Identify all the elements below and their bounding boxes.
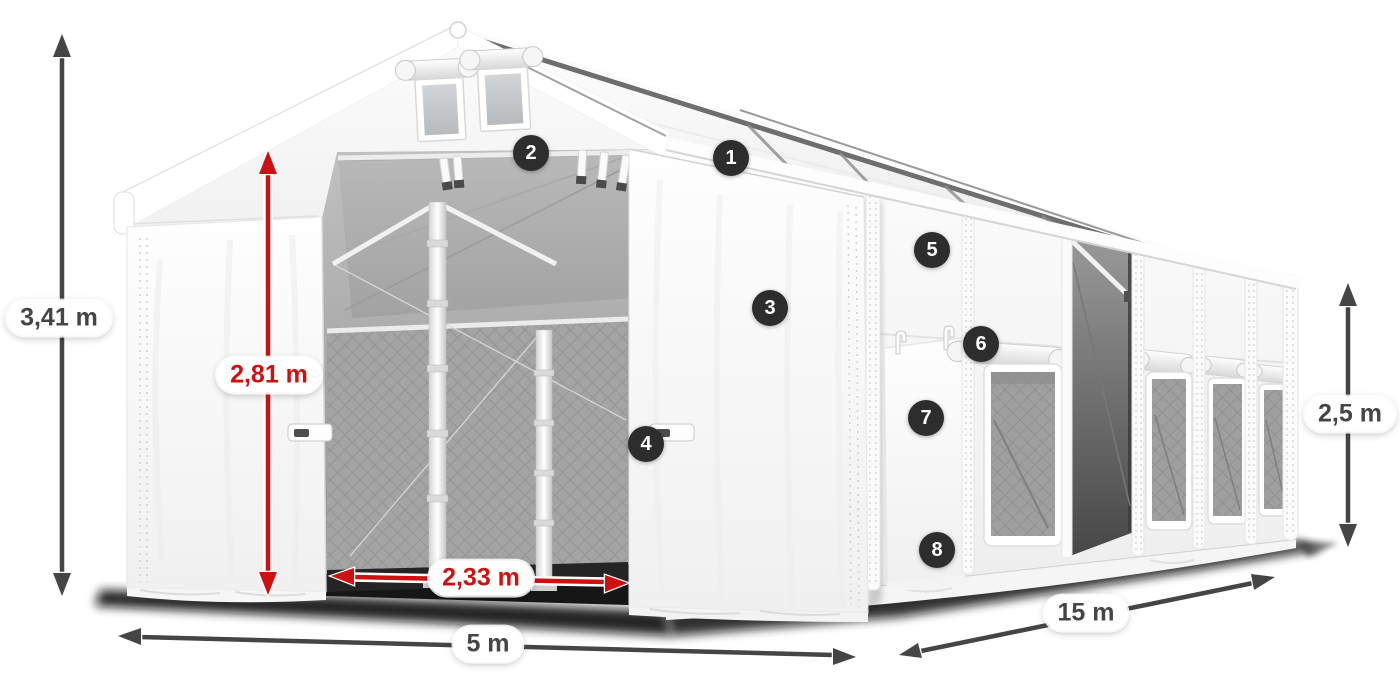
open-side-bay: [1070, 237, 1135, 556]
dimension-total-height: 3,41 m: [7, 301, 111, 336]
front-door-left-leaf: [127, 217, 332, 602]
feature-marker-2: 2: [513, 135, 549, 171]
tent-dimension-diagram: 3,41 m 2,81 m 2,33 m 5 m 15 m 2,5 m 1 2 …: [0, 0, 1400, 700]
dimension-front-width: 5 m: [453, 627, 522, 662]
feature-marker-1: 1: [713, 140, 749, 176]
dimension-clearance-height: 2,81 m: [217, 358, 321, 393]
door-handle-left: [288, 424, 332, 441]
feature-marker-7: 7: [908, 400, 944, 436]
ridge-peak-cap: [450, 22, 466, 38]
dimension-side-wall-height: 2,5 m: [1305, 397, 1395, 432]
tent-illustration: [0, 0, 1400, 700]
feature-marker-3: 3: [752, 290, 788, 326]
feature-marker-5: 5: [914, 232, 950, 268]
dimension-door-width: 2,33 m: [429, 561, 533, 596]
feature-marker-6: 6: [963, 326, 999, 362]
dimension-side-length: 15 m: [1045, 596, 1128, 631]
feature-marker-8: 8: [919, 532, 955, 568]
feature-marker-4: 4: [628, 426, 664, 462]
front-door-right-leaf-open: [629, 149, 868, 622]
front-interior: [322, 149, 660, 606]
